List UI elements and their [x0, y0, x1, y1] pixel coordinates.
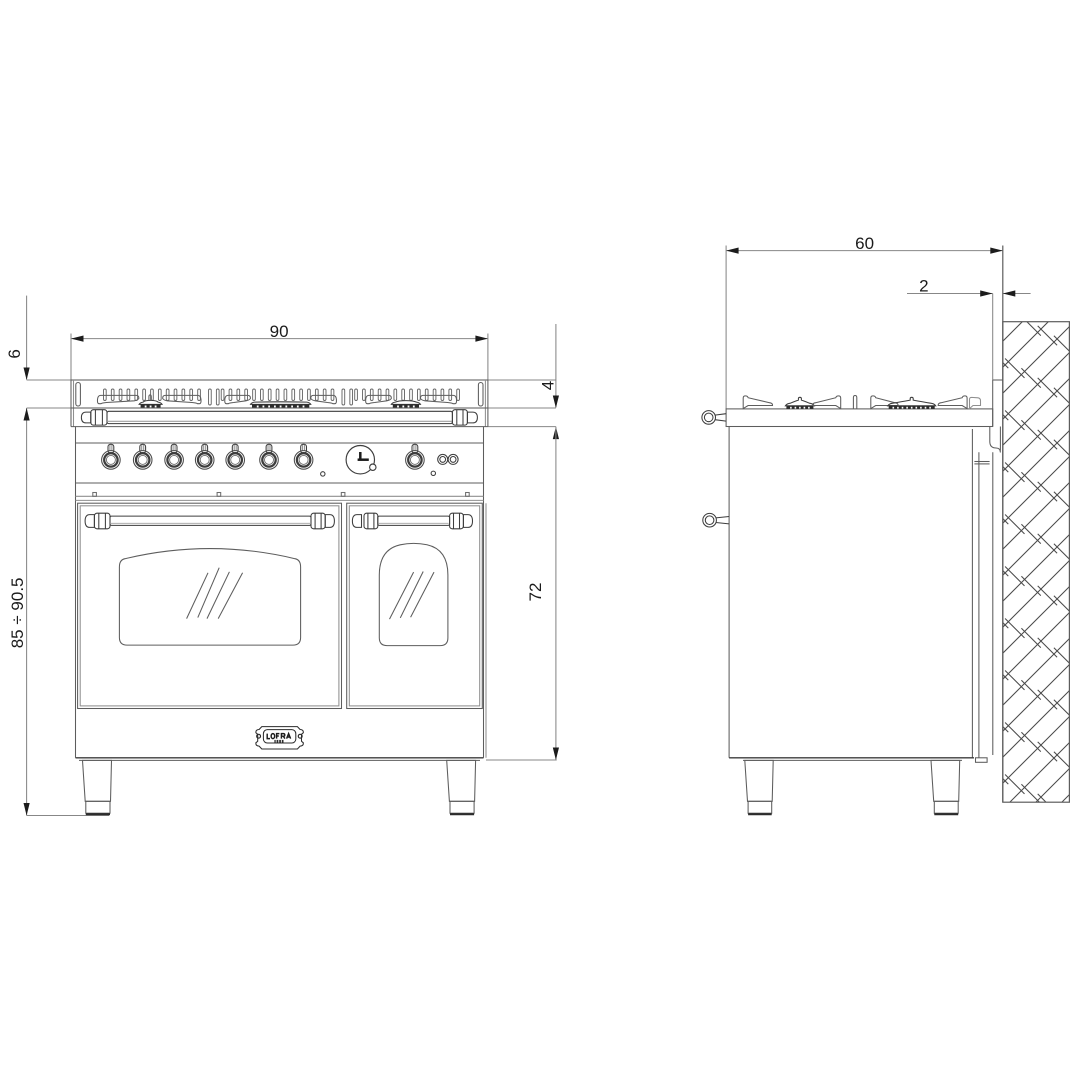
svg-text:6: 6 [5, 349, 24, 358]
svg-text:60: 60 [855, 234, 874, 253]
svg-text:2: 2 [919, 277, 928, 296]
svg-text:85 ÷ 90.5: 85 ÷ 90.5 [8, 578, 27, 649]
svg-text:72: 72 [526, 583, 545, 602]
svg-text:90: 90 [270, 322, 289, 341]
svg-text:4: 4 [538, 381, 557, 390]
